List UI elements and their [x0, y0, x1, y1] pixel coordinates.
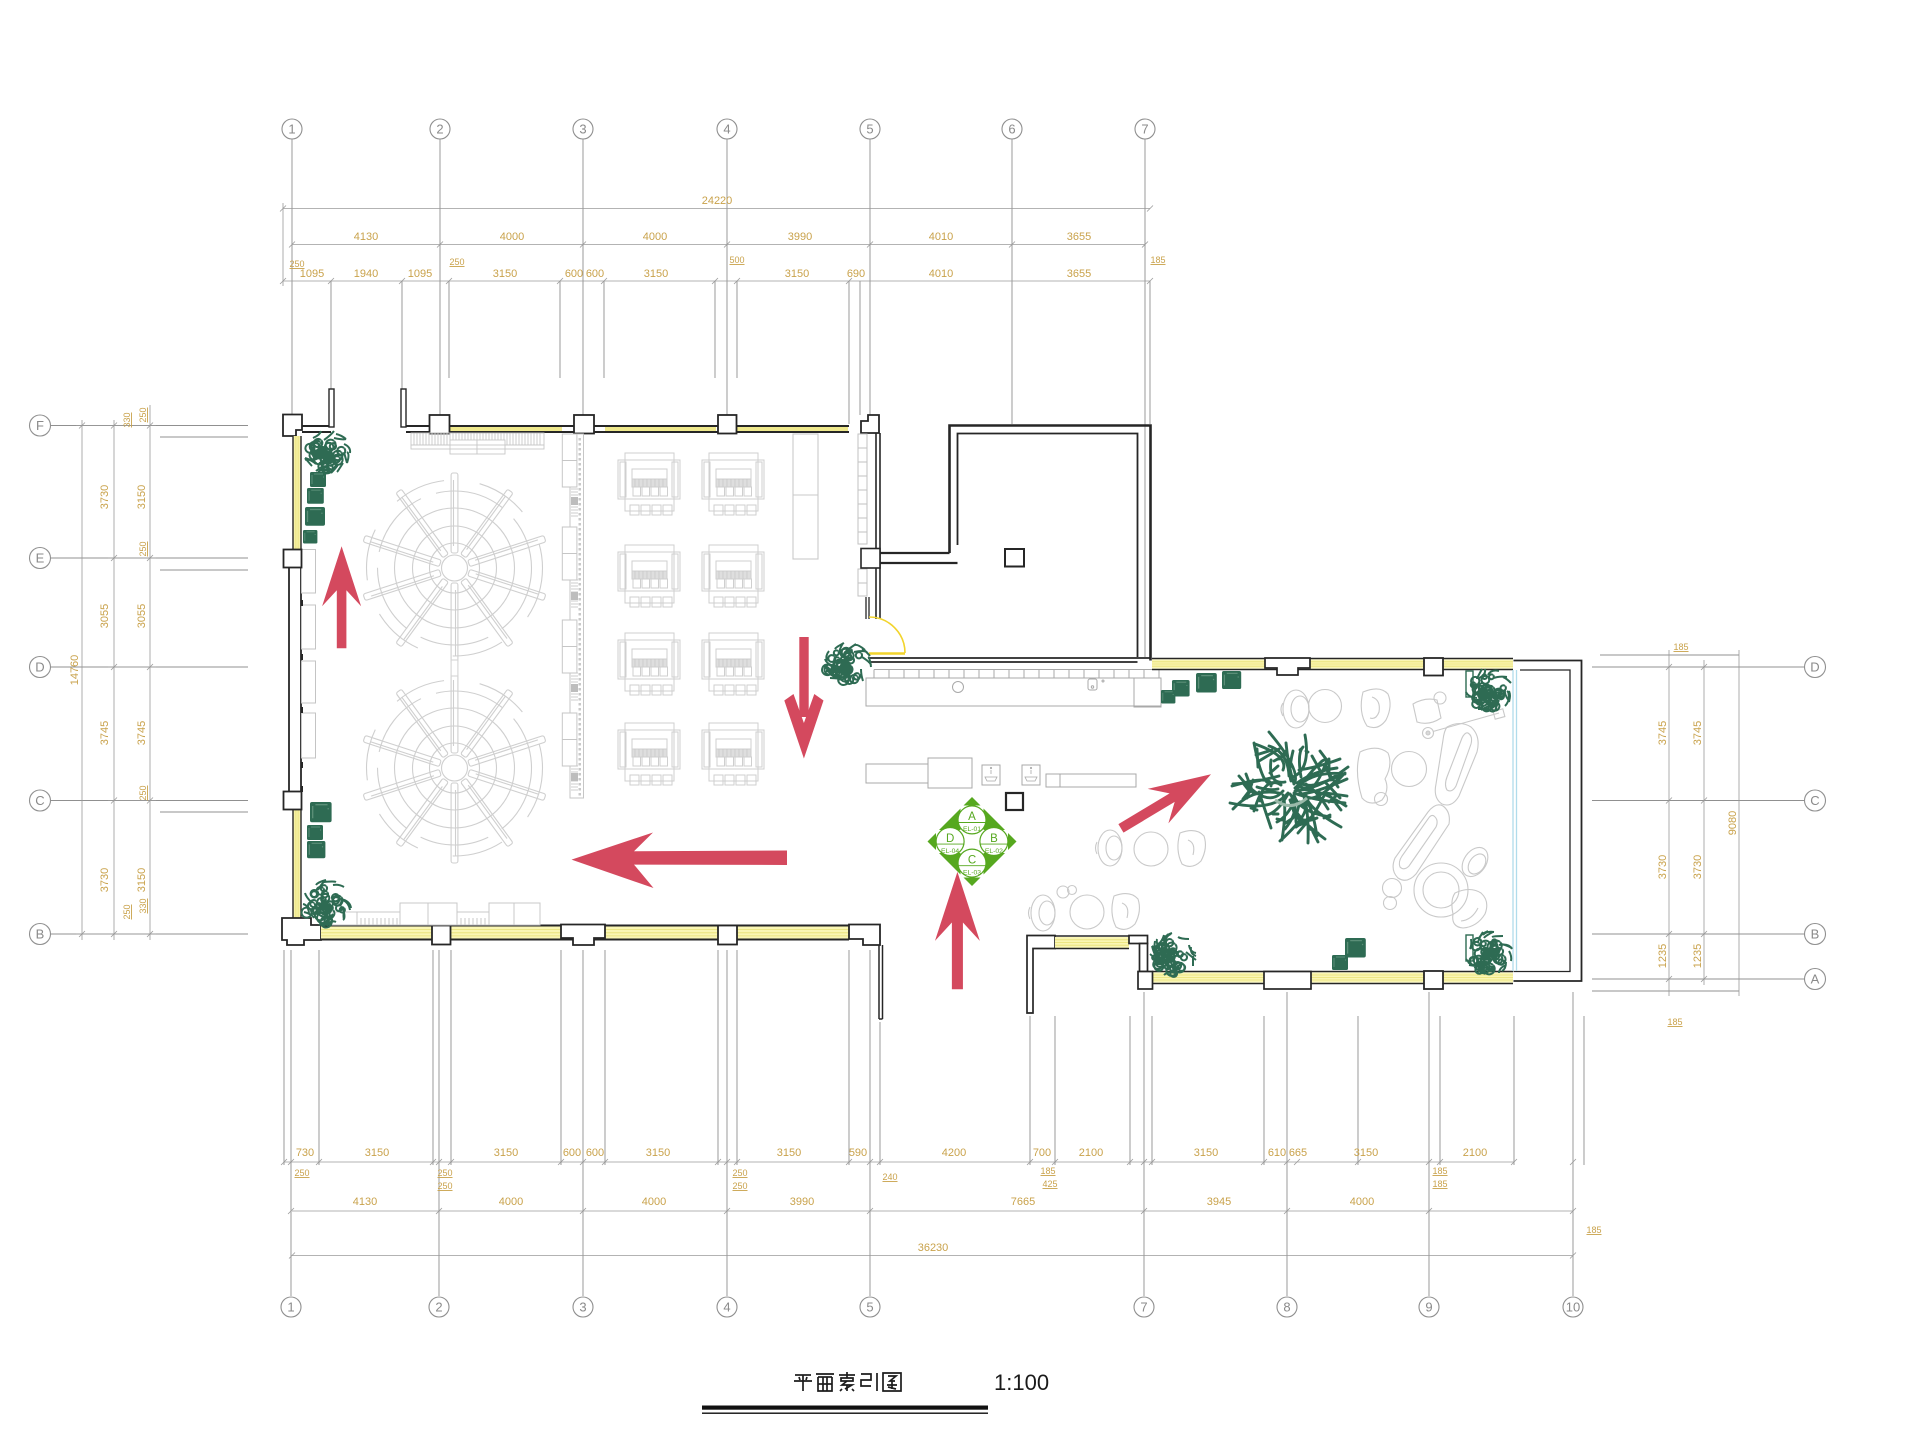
svg-text:1095: 1095	[408, 268, 432, 280]
svg-text:3150: 3150	[1194, 1147, 1218, 1159]
svg-text:5: 5	[866, 1300, 873, 1315]
svg-text:E: E	[36, 551, 45, 566]
svg-text:3150: 3150	[646, 1147, 670, 1159]
svg-text:3150: 3150	[136, 868, 148, 892]
svg-text:250: 250	[437, 1181, 452, 1191]
svg-text:3150: 3150	[777, 1147, 801, 1159]
svg-text:3150: 3150	[494, 1147, 518, 1159]
svg-text:9: 9	[1425, 1300, 1432, 1315]
svg-text:1095: 1095	[300, 268, 324, 280]
svg-text:EL-03: EL-03	[963, 869, 981, 876]
svg-text:4: 4	[723, 1300, 730, 1315]
svg-text:330: 330	[138, 898, 148, 913]
svg-text:3945: 3945	[1207, 1196, 1231, 1208]
svg-text:8: 8	[1283, 1300, 1290, 1315]
svg-text:3150: 3150	[493, 268, 517, 280]
svg-text:B: B	[36, 927, 45, 942]
svg-text:14760: 14760	[69, 655, 81, 686]
svg-text:3: 3	[579, 122, 586, 137]
svg-text:2: 2	[436, 122, 443, 137]
svg-text:D: D	[946, 833, 954, 845]
svg-text:3: 3	[579, 1300, 586, 1315]
svg-text:3745: 3745	[1692, 721, 1704, 745]
svg-text:3655: 3655	[1067, 231, 1091, 243]
svg-text:3150: 3150	[136, 485, 148, 509]
svg-text:EL-02: EL-02	[985, 848, 1003, 855]
svg-text:C: C	[1810, 793, 1819, 808]
svg-text:665: 665	[1289, 1147, 1307, 1159]
svg-text:EL-04: EL-04	[941, 848, 959, 855]
svg-text:1235: 1235	[1692, 944, 1704, 968]
svg-text:185: 185	[1673, 642, 1688, 652]
svg-text:7665: 7665	[1011, 1196, 1035, 1208]
svg-text:240: 240	[882, 1172, 897, 1182]
svg-text:A: A	[1811, 972, 1820, 987]
svg-text:5: 5	[866, 122, 873, 137]
svg-text:4200: 4200	[942, 1147, 966, 1159]
svg-text:7: 7	[1141, 122, 1148, 137]
svg-text:700: 700	[1033, 1147, 1051, 1159]
svg-text:10: 10	[1566, 1300, 1580, 1315]
svg-text:600: 600	[586, 1147, 604, 1159]
svg-text:3730: 3730	[99, 485, 111, 509]
svg-text:EL-01: EL-01	[963, 826, 981, 833]
svg-text:185: 185	[1432, 1166, 1447, 1176]
svg-text:250: 250	[289, 259, 304, 269]
svg-text:1:100: 1:100	[994, 1370, 1049, 1395]
svg-text:500: 500	[729, 255, 744, 265]
svg-text:250: 250	[138, 785, 148, 800]
svg-text:4010: 4010	[929, 268, 953, 280]
svg-text:590: 590	[849, 1147, 867, 1159]
svg-text:3150: 3150	[1354, 1147, 1378, 1159]
svg-text:185: 185	[1150, 255, 1165, 265]
svg-text:2: 2	[435, 1300, 442, 1315]
svg-text:C: C	[968, 854, 976, 866]
svg-text:F: F	[36, 418, 44, 433]
svg-text:3745: 3745	[136, 721, 148, 745]
svg-text:3990: 3990	[790, 1196, 814, 1208]
svg-text:3150: 3150	[365, 1147, 389, 1159]
svg-text:4000: 4000	[642, 1196, 666, 1208]
svg-text:7: 7	[1140, 1300, 1147, 1315]
svg-text:3055: 3055	[99, 604, 111, 628]
svg-text:600: 600	[563, 1147, 581, 1159]
svg-text:3730: 3730	[99, 868, 111, 892]
svg-text:4: 4	[723, 122, 730, 137]
svg-text:3055: 3055	[136, 604, 148, 628]
svg-text:250: 250	[449, 257, 464, 267]
svg-text:3745: 3745	[99, 721, 111, 745]
svg-text:250: 250	[732, 1181, 747, 1191]
svg-text:4130: 4130	[354, 231, 378, 243]
svg-text:330: 330	[122, 412, 132, 427]
svg-text:C: C	[35, 793, 44, 808]
svg-text:36230: 36230	[918, 1242, 949, 1254]
svg-text:185: 185	[1040, 1166, 1055, 1176]
svg-text:24220: 24220	[702, 195, 733, 207]
svg-text:A: A	[968, 811, 976, 823]
svg-text:3730: 3730	[1692, 855, 1704, 879]
svg-text:250: 250	[138, 541, 148, 556]
svg-text:610: 610	[1268, 1147, 1286, 1159]
svg-text:1: 1	[288, 122, 295, 137]
svg-text:4000: 4000	[643, 231, 667, 243]
svg-text:730: 730	[296, 1147, 314, 1159]
svg-text:3745: 3745	[1657, 721, 1669, 745]
svg-text:1235: 1235	[1657, 944, 1669, 968]
svg-text:9080: 9080	[1727, 811, 1739, 835]
svg-text:600: 600	[565, 268, 583, 280]
svg-text:425: 425	[1042, 1179, 1057, 1189]
svg-text:600: 600	[586, 268, 604, 280]
svg-text:250: 250	[437, 1168, 452, 1178]
svg-text:3150: 3150	[785, 268, 809, 280]
svg-text:250: 250	[138, 407, 148, 422]
svg-text:D: D	[35, 660, 44, 675]
svg-text:4000: 4000	[1350, 1196, 1374, 1208]
svg-text:185: 185	[1667, 1017, 1682, 1027]
svg-text:2100: 2100	[1463, 1147, 1487, 1159]
svg-text:3655: 3655	[1067, 268, 1091, 280]
svg-text:1: 1	[287, 1300, 294, 1315]
svg-text:D: D	[1810, 660, 1819, 675]
svg-text:3730: 3730	[1657, 855, 1669, 879]
svg-text:250: 250	[732, 1168, 747, 1178]
svg-text:4000: 4000	[500, 231, 524, 243]
svg-text:1940: 1940	[354, 268, 378, 280]
svg-text:4000: 4000	[499, 1196, 523, 1208]
svg-text:3150: 3150	[644, 268, 668, 280]
svg-text:6: 6	[1008, 122, 1015, 137]
svg-text:2100: 2100	[1079, 1147, 1103, 1159]
svg-text:B: B	[1811, 927, 1820, 942]
svg-text:185: 185	[1432, 1179, 1447, 1189]
svg-text:250: 250	[122, 904, 132, 919]
svg-text:3990: 3990	[788, 231, 812, 243]
svg-text:250: 250	[294, 1168, 309, 1178]
svg-text:4130: 4130	[353, 1196, 377, 1208]
svg-text:690: 690	[847, 268, 865, 280]
svg-text:B: B	[990, 833, 998, 845]
svg-text:185: 185	[1586, 1225, 1601, 1235]
svg-text:4010: 4010	[929, 231, 953, 243]
